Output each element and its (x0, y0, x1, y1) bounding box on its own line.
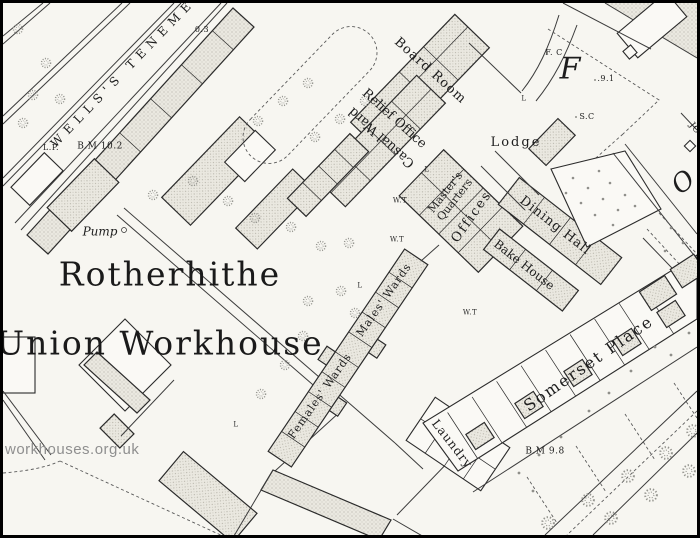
building-label-dining-hall: Dining Hall (517, 194, 593, 258)
map-title-line2: Union Workhouse (0, 327, 324, 362)
building-label-board-room: Board Room (391, 35, 468, 106)
fc-marker-label: F. C (545, 49, 563, 57)
map-image: WELLS'S TENEME 0.3 L.P. B.M 10.2 Board R… (0, 0, 700, 538)
building-label-bake-house: Bake House (491, 238, 556, 293)
lamp-label: L (233, 421, 238, 428)
building-label-females-wards: Females' Wards (286, 351, 354, 441)
map-labels: WELLS'S TENEME 0.3 L.P. B.M 10.2 Board R… (3, 3, 697, 535)
map-title-line1: Rotherhithe (59, 258, 281, 293)
lamp-label: L (357, 282, 362, 289)
building-label-males-wards: Males' Wards (354, 261, 413, 339)
lamp-post-label: L.P. (43, 144, 59, 152)
pump-label: Pump (83, 226, 118, 239)
water-tap-label: W.T (390, 236, 404, 243)
street-label-jo: JO (687, 121, 700, 136)
sc-marker-label: S.C (579, 113, 594, 121)
site-watermark: workhouses.org.uk (5, 441, 139, 458)
building-label-lodge: Lodge (491, 136, 542, 150)
building-label-laundry: Laundry (429, 417, 474, 470)
street-label-wells-tenements: WELLS'S TENEME (48, 0, 197, 150)
street-big-letter-f: F (560, 53, 581, 85)
lamp-label: L (424, 166, 429, 173)
water-tap-label: W.T (463, 309, 477, 316)
benchmark-102-label: B.M 10.2 (77, 142, 123, 151)
benchmark-98-label: B.M 9.8 (525, 447, 564, 456)
parcel-number-label: 0.3 (195, 26, 209, 34)
water-tap-label: W.T (393, 197, 407, 204)
street-big-letter-o: O (667, 166, 700, 201)
lamp-label: L (521, 95, 526, 102)
spot-height-label: .9.1 (597, 75, 614, 83)
street-label-somerset-place: Somerset Place (521, 313, 657, 415)
